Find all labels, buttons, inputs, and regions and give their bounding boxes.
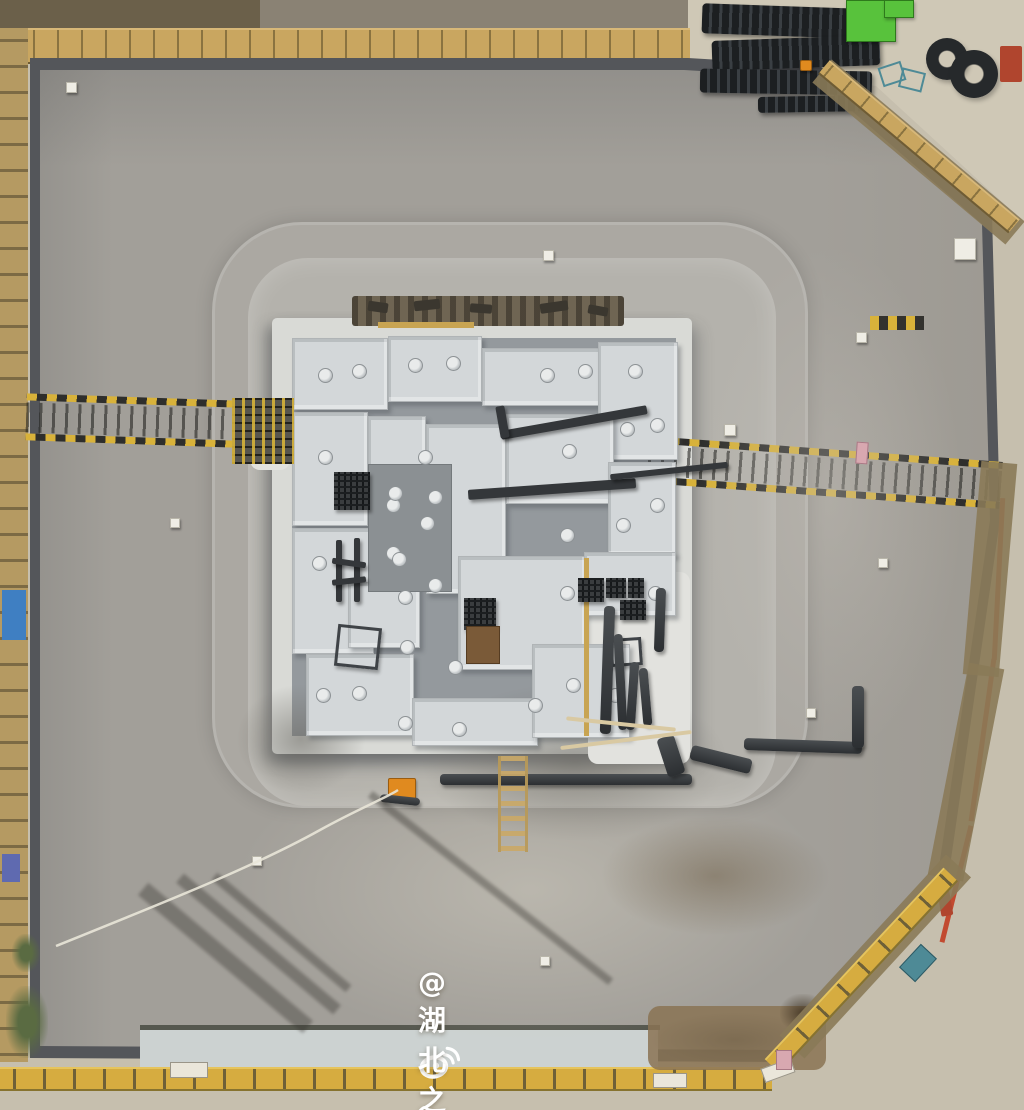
pile-cap: [418, 450, 433, 465]
warning-light: [800, 60, 812, 71]
pile-cap: [566, 678, 581, 693]
pile-cap: [448, 660, 463, 675]
wire-coil: [950, 50, 998, 98]
debris: [470, 303, 493, 314]
pile-cap: [650, 418, 665, 433]
rebar-cage: [628, 578, 644, 598]
survey-marker: [252, 856, 262, 866]
pile-cap: [628, 364, 643, 379]
pile-cap: [352, 686, 367, 701]
scene-objects: [0, 0, 1024, 1110]
formwork-edge: [378, 322, 474, 328]
ladder: [498, 756, 528, 852]
pile-cap: [562, 444, 577, 459]
pile-cap: [398, 590, 413, 605]
aerial-photo-construction-site: @湖北之声: [0, 0, 1024, 1110]
sign-board: [170, 1062, 208, 1078]
survey-marker: [66, 82, 77, 93]
pile-cap: [452, 722, 467, 737]
short-walkway: [870, 316, 924, 330]
pile-cap: [620, 422, 635, 437]
pile-cap: [352, 364, 367, 379]
survey-marker: [724, 424, 736, 436]
pile-cap: [650, 498, 665, 513]
pile-cap: [446, 356, 461, 371]
pile-cap: [560, 528, 575, 543]
survey-marker: [878, 558, 888, 568]
pile-cap: [428, 490, 443, 505]
wet-patch: [600, 816, 830, 936]
concrete-slab: [388, 336, 482, 402]
drain-pipe: [852, 686, 864, 748]
steel-post: [354, 538, 360, 602]
concrete-slab: [292, 338, 388, 410]
rebar-cage: [606, 578, 626, 598]
steel-post: [336, 540, 342, 602]
blue-tarp: [2, 590, 26, 640]
pile-cap: [316, 688, 331, 703]
pile-cap: [616, 518, 631, 533]
pile-cap: [408, 358, 423, 373]
pile-cap: [318, 368, 333, 383]
concrete-slab: [412, 698, 538, 746]
vegetation: [6, 986, 48, 1058]
red-equipment: [1000, 46, 1022, 82]
pile-cap: [392, 552, 407, 567]
vegetation: [12, 934, 40, 972]
sign-board: [899, 944, 937, 982]
flag: [855, 442, 869, 465]
pile-cap: [420, 516, 435, 531]
pile-cap: [578, 364, 593, 379]
equipment-box: [954, 238, 976, 260]
rust-box: [466, 626, 500, 664]
pile-cap: [318, 450, 333, 465]
rebar-cage: [578, 578, 604, 602]
rebar-cage: [334, 472, 370, 510]
survey-marker: [806, 708, 816, 718]
pile-cap: [560, 586, 575, 601]
pile-cap: [398, 716, 413, 731]
sign-board: [776, 1050, 792, 1070]
survey-marker: [170, 518, 180, 528]
watermark-text: @湖北之声: [418, 966, 447, 1110]
drain-pipe: [440, 774, 692, 785]
pile-cap: [528, 698, 543, 713]
rebar-bundle: [702, 3, 861, 38]
dirt-berm: [963, 461, 1018, 677]
rebar-cage: [620, 600, 646, 620]
steel-frame: [334, 624, 382, 670]
scaffold-rack: [232, 398, 294, 464]
pile-cap: [540, 368, 555, 383]
blue-tarp: [2, 854, 20, 882]
pile-cap: [312, 556, 327, 571]
mud-mat: [368, 464, 452, 592]
steel-stand: [898, 67, 926, 92]
survey-marker: [543, 250, 554, 261]
sign-board: [653, 1073, 687, 1088]
pile-cap: [400, 640, 415, 655]
survey-marker: [540, 956, 550, 966]
pile-cap: [388, 486, 403, 501]
green-lift: [884, 0, 914, 18]
survey-marker: [856, 332, 867, 343]
pile-cap: [428, 578, 443, 593]
